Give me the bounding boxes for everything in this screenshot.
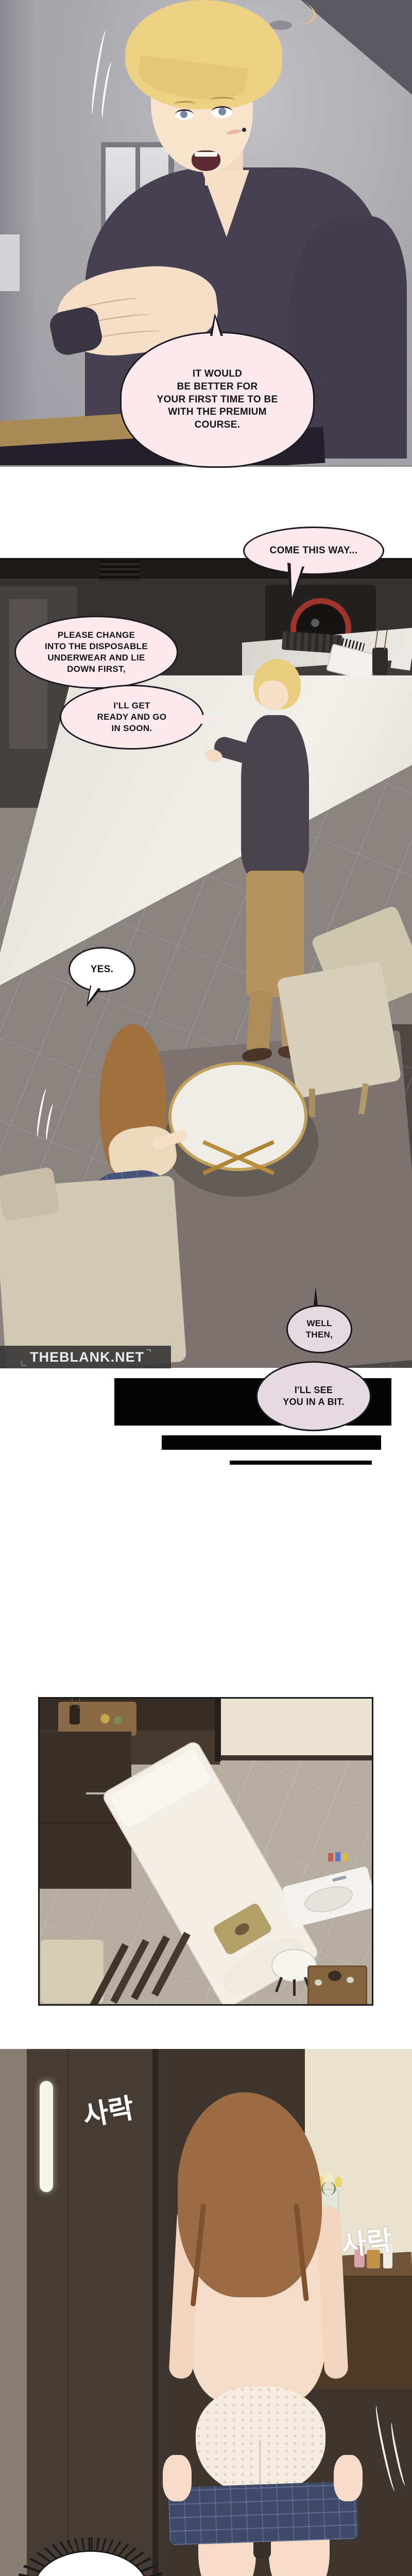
toiletry-bottle [342,1853,348,1861]
bubble-line: YES. [91,963,114,976]
speech-bubble-premium-course: IT WOULD BE BETTER FOR YOUR FIRST TIME T… [120,332,315,468]
man-eyebrow-left [174,101,196,108]
speech-bubble-please-change: PLEASE CHANGE INTO THE DISPOSABLE UNDERW… [14,616,178,689]
bubble-line: THEN, [306,1329,333,1341]
hand-right-on-skirt [334,2455,363,2501]
burst-bubble-phew: PHEW, THAT'S A RELIEF! [15,2537,166,2576]
door-light-strip [40,2081,53,2192]
panel-reception-lobby: PLEASE CHANGE INTO THE DISPOSABLE UNDERW… [0,558,412,1368]
baseboard [220,1755,372,1760]
bubble-line: DOWN FIRST, [67,664,126,675]
window-pane-left [0,234,20,291]
bubble-line: YOU IN A BIT. [283,1396,345,1408]
bubble-line: UNDERWEAR AND LIE [47,652,145,664]
shelf-jar-green [114,1716,122,1724]
hand-left-on-skirt [163,2455,192,2501]
sink-basin [302,1882,355,1917]
toiletry-bottle [328,1853,333,1861]
bubble-line: COURSE. [195,419,241,432]
teacup [315,1979,322,1986]
bubble-line: PLEASE CHANGE [58,630,135,641]
sink-counter [282,1866,373,1928]
watermark-text: THEBLANK.NET [30,1349,144,1365]
left-wall-shadow [0,0,36,466]
bubble-line: IT WOULD [193,368,242,381]
toiletry-bottle [335,1852,340,1861]
chair-back-slat [151,1932,191,1997]
bubble-line: YOUR FIRST TIME TO BE [157,394,278,406]
speech-bubble-come-this-way: COME THIS WAY... [243,527,384,575]
teacup [347,1977,354,1983]
armchair-right-leg [309,1089,315,1117]
bubble-line: WELL [306,1318,332,1329]
burst-text: PHEW, THAT'S A RELIEF! [15,2537,166,2576]
bubble-line: I'LL SEE [295,1384,333,1396]
left-wall-strip [0,2049,27,2576]
chair-back-slat [131,1936,170,2001]
door-frame [152,2049,159,2576]
ceiling-vent [99,560,140,581]
chair-cushion [41,1940,104,2003]
tulip-leaves [321,2182,336,2195]
plaid-skirt-lowered [168,2481,358,2546]
man-eye-right-iris [218,108,226,115]
logo-center-knob [311,619,319,627]
bubble-line: I'LL GET [113,700,150,711]
webtoon-page: IT WOULD BE BETTER FOR YOUR FIRST TIME T… [0,0,412,2576]
bubble-line: INTO THE DISPOSABLE [45,641,148,652]
stool-leg [293,1979,296,1996]
armchair-left-arm [0,1166,60,1222]
man-eyebrow-right [210,97,235,104]
sink-faucet [332,1875,347,1882]
sfx-rustle-2: 사락 [339,2217,394,2263]
speech-bubble-see-you: I'LL SEE YOU IN A BIT. [256,1361,371,1431]
chair-back-slat [110,1939,149,2004]
keycard [390,654,411,670]
tulip [335,2177,342,2187]
man-earring [242,128,246,132]
teapot [328,1971,341,1981]
man-eye-left-iris [180,111,187,118]
speech-bubble-well-then: WELL THEN, [286,1305,352,1353]
armchair-right-seat [277,961,402,1098]
censor-bar-thin [230,1461,372,1465]
door-groove [67,2049,68,2576]
bubble-tail-up-fill [212,317,221,337]
panel-massage-room [38,1697,373,2006]
censor-bar-medium [162,1435,381,1450]
standing-man-shirt [241,715,309,877]
reed-diffuser [372,648,388,674]
standing-man-leg [246,990,273,1053]
standing-man-face [259,681,288,710]
lace-panties-back [196,2386,325,2496]
bubble-line: WITH THE PREMIUM [168,406,267,419]
bubble-line: BE BETTER FOR [177,381,258,394]
watermark-corner-right: ¬ [146,1346,151,1355]
bubble-line: READY AND GO [97,711,167,723]
panel-changing-room: 사락 사락 [0,2049,412,2576]
bubble-line: IN SOON. [112,723,152,734]
man-teeth [195,152,217,157]
wall-divider [215,1699,221,1761]
speech-bubble-get-ready: I'LL GET READY AND GO IN SOON. [60,685,204,750]
watermark-corner-left: ∟ [20,1359,28,1368]
wall-right-lit [220,1699,372,1759]
watermark: ∟ THEBLANK.NET ¬ [0,1346,171,1368]
bubble-line: COME THIS WAY... [270,545,358,557]
speech-bubble-yes: YES. [68,947,135,992]
tulip [325,2172,333,2182]
shelf-jar-gold [100,1714,110,1723]
